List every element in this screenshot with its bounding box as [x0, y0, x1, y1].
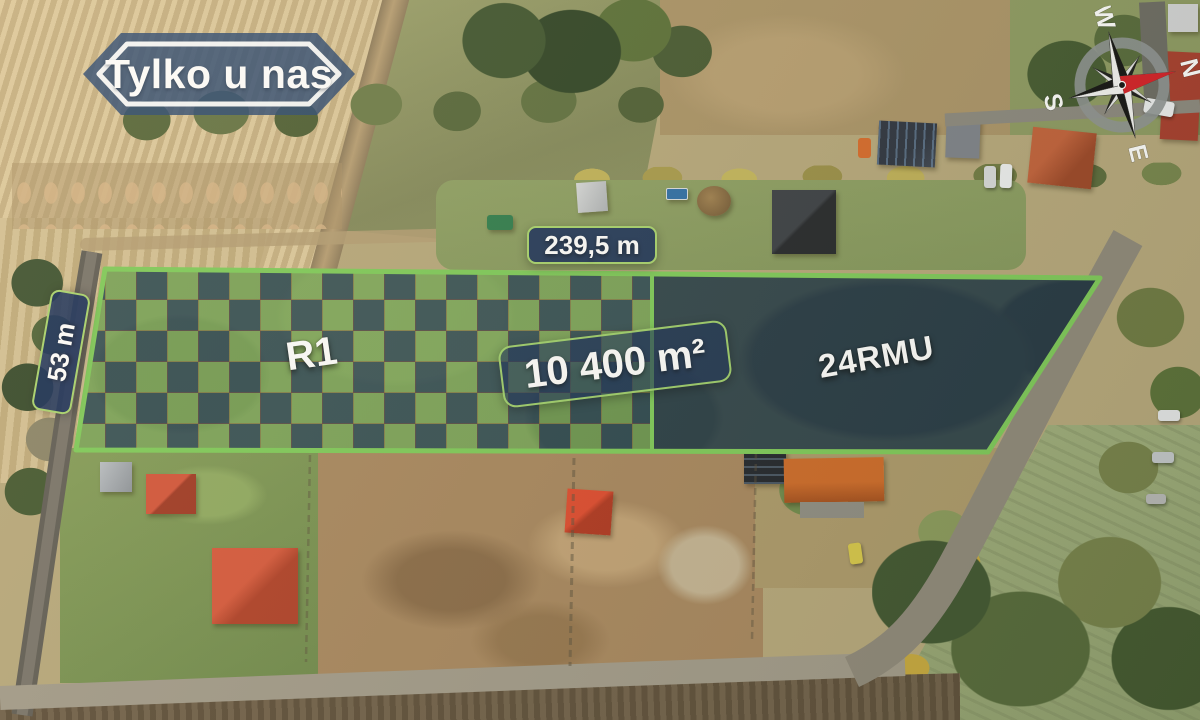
compass-letter-s: S	[1038, 91, 1069, 114]
badge-label: Tylko u nas	[83, 33, 355, 115]
exclusive-badge: Tylko u nas	[83, 33, 355, 115]
zone-r1-label: R1	[283, 329, 340, 381]
compass-rose-icon: N E S W	[1042, 0, 1200, 170]
frontage-length-label: 239,5 m	[527, 226, 657, 264]
compass-letter-e: E	[1122, 142, 1153, 165]
compass-letter-n: N	[1174, 56, 1200, 80]
compass-letter-w: W	[1088, 2, 1121, 32]
compass-svg: N E S W	[1020, 0, 1200, 183]
aerial-listing-image: 239,5 m 53 m 10 400 m² R1 24RMU Tylko u …	[0, 0, 1200, 720]
